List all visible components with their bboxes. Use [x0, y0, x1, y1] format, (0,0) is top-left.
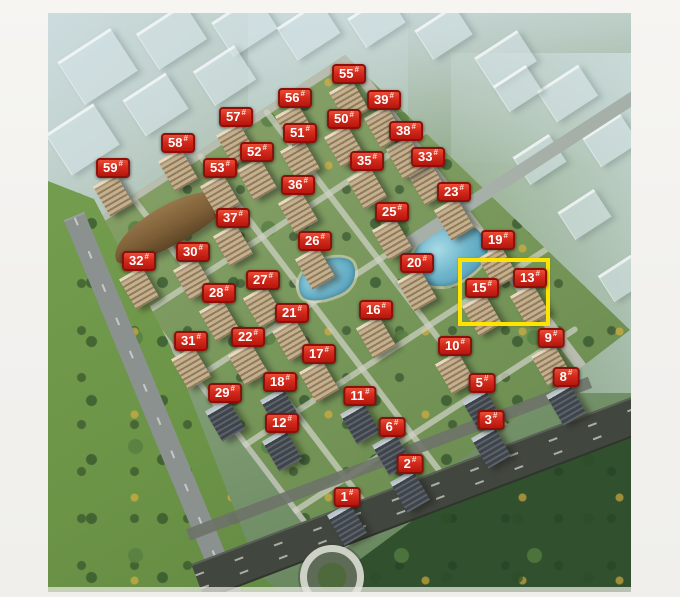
number-suffix: #: [184, 134, 188, 143]
building-number: 32: [129, 253, 143, 268]
number-suffix: #: [226, 159, 230, 168]
building-number: 37: [223, 210, 237, 225]
building-label-50: 50#: [327, 109, 361, 129]
building-label-12: 12#: [265, 413, 299, 433]
number-suffix: #: [325, 345, 329, 354]
number-suffix: #: [254, 328, 258, 337]
number-suffix: #: [199, 243, 203, 252]
building-number: 9: [545, 330, 552, 345]
ghost-building: [57, 28, 138, 105]
number-suffix: #: [242, 108, 246, 117]
number-suffix: #: [239, 209, 243, 218]
building-label-55: 55#: [332, 64, 366, 84]
number-suffix: #: [288, 414, 292, 423]
building-number: 35: [357, 153, 371, 168]
number-suffix: #: [484, 374, 488, 383]
number-suffix: #: [306, 124, 310, 133]
building-label-59: 59#: [96, 158, 130, 178]
building-number: 29: [215, 385, 229, 400]
building-label-3: 3#: [478, 410, 505, 430]
number-suffix: #: [504, 231, 508, 240]
number-suffix: #: [321, 232, 325, 241]
building-number: 51: [290, 125, 304, 140]
ghost-building: [557, 189, 611, 240]
building-number: 30: [183, 244, 197, 259]
building-label-27: 27#: [246, 270, 280, 290]
number-suffix: #: [298, 304, 302, 313]
ghost-building: [414, 13, 472, 60]
building-number: 10: [445, 338, 459, 353]
ghost-building: [598, 255, 631, 302]
building-label-25: 25#: [375, 202, 409, 222]
building-number: 58: [168, 135, 182, 150]
building-label-8: 8#: [553, 367, 580, 387]
building-label-20: 20#: [400, 253, 434, 273]
building-number: 59: [103, 160, 117, 175]
article-image-page: 1#2#3#5#6#8#9#10#11#12#13#15#16#17#18#19…: [0, 0, 680, 597]
photo-bottom-edge: [48, 587, 631, 592]
number-suffix: #: [536, 269, 540, 278]
building-label-23: 23#: [437, 182, 471, 202]
building-number: 53: [210, 160, 224, 175]
building-number: 50: [334, 111, 348, 126]
number-suffix: #: [412, 122, 416, 131]
number-suffix: #: [461, 337, 465, 346]
number-suffix: #: [197, 332, 201, 341]
building-number: 38: [396, 123, 410, 138]
building-label-51: 51#: [283, 123, 317, 143]
number-suffix: #: [263, 143, 267, 152]
building-label-21: 21#: [275, 303, 309, 323]
building-number: 5: [476, 375, 483, 390]
building-number: 1: [341, 489, 348, 504]
building-number: 11: [350, 388, 364, 403]
building-label-36: 36#: [281, 175, 315, 195]
building-number: 15: [472, 280, 486, 295]
building-label-16: 16#: [359, 300, 393, 320]
building-label-39: 39#: [367, 90, 401, 110]
number-suffix: #: [350, 110, 354, 119]
building-number: 3: [485, 412, 492, 427]
number-suffix: #: [412, 455, 416, 464]
ghost-building: [136, 13, 207, 70]
building-label-2: 2#: [397, 454, 424, 474]
building-label-58: 58#: [161, 133, 195, 153]
building-label-10: 10#: [438, 336, 472, 356]
building-number: 57: [226, 109, 240, 124]
building-label-15: 15#: [465, 278, 499, 298]
building-number: 23: [444, 184, 458, 199]
building-label-13: 13#: [513, 268, 547, 288]
building-number: 33: [418, 149, 432, 164]
number-suffix: #: [398, 203, 402, 212]
building-label-57: 57#: [219, 107, 253, 127]
building-label-22: 22#: [231, 327, 265, 347]
building-label-31: 31#: [174, 331, 208, 351]
number-suffix: #: [493, 411, 497, 420]
building-number: 36: [288, 177, 302, 192]
number-suffix: #: [460, 183, 464, 192]
building-number: 55: [339, 66, 353, 81]
building-label-35: 35#: [350, 151, 384, 171]
ghost-building: [537, 65, 598, 123]
ghost-building: [347, 13, 405, 48]
building-number: 2: [404, 456, 411, 471]
number-suffix: #: [355, 65, 359, 74]
building-label-53: 53#: [203, 158, 237, 178]
building-number: 21: [282, 305, 296, 320]
building-label-5: 5#: [469, 373, 496, 393]
number-suffix: #: [304, 176, 308, 185]
number-suffix: #: [119, 159, 123, 168]
number-suffix: #: [382, 301, 386, 310]
building-number: 6: [386, 419, 393, 434]
building-label-1: 1#: [334, 487, 361, 507]
number-suffix: #: [568, 368, 572, 377]
building-label-18: 18#: [263, 372, 297, 392]
building-label-17: 17#: [302, 344, 336, 364]
building-number: 31: [181, 333, 195, 348]
ghost-building: [276, 13, 340, 61]
building-number: 27: [253, 272, 267, 287]
building-label-32: 32#: [122, 251, 156, 271]
building-label-28: 28#: [202, 283, 236, 303]
number-suffix: #: [286, 373, 290, 382]
building-number: 28: [209, 285, 223, 300]
number-suffix: #: [269, 271, 273, 280]
building-label-56: 56#: [278, 88, 312, 108]
number-suffix: #: [373, 152, 377, 161]
ghost-building: [211, 13, 278, 57]
building-number: 52: [247, 144, 261, 159]
building-label-30: 30#: [176, 242, 210, 262]
building-label-29: 29#: [208, 383, 242, 403]
building-number: 56: [285, 90, 299, 105]
building-label-9: 9#: [538, 328, 565, 348]
building-number: 8: [560, 369, 567, 384]
building-number: 18: [270, 374, 284, 389]
number-suffix: #: [349, 488, 353, 497]
building-label-38: 38#: [389, 121, 423, 141]
building-label-6: 6#: [379, 417, 406, 437]
building-number: 12: [272, 415, 286, 430]
building-label-11: 11#: [343, 386, 376, 406]
number-suffix: #: [145, 252, 149, 261]
building-number: 19: [488, 232, 502, 247]
building-number: 16: [366, 302, 380, 317]
masterplan-aerial-rendering: 1#2#3#5#6#8#9#10#11#12#13#15#16#17#18#19…: [48, 13, 631, 592]
building-label-26: 26#: [298, 231, 332, 251]
number-suffix: #: [394, 418, 398, 427]
ghost-building: [193, 45, 256, 106]
number-suffix: #: [553, 329, 557, 338]
building-number: 26: [305, 233, 319, 248]
ghost-building: [122, 73, 188, 137]
number-suffix: #: [365, 387, 369, 396]
building-number: 13: [520, 270, 534, 285]
number-suffix: #: [488, 279, 492, 288]
number-suffix: #: [390, 91, 394, 100]
number-suffix: #: [301, 89, 305, 98]
building-number: 39: [374, 92, 388, 107]
building-number: 22: [238, 329, 252, 344]
building-number: 20: [407, 255, 421, 270]
building-label-52: 52#: [240, 142, 274, 162]
number-suffix: #: [231, 384, 235, 393]
building-number: 25: [382, 204, 396, 219]
building-label-19: 19#: [481, 230, 515, 250]
building-label-37: 37#: [216, 208, 250, 228]
number-suffix: #: [225, 284, 229, 293]
building-number: 17: [309, 346, 323, 361]
building-label-33: 33#: [411, 147, 445, 167]
number-suffix: #: [434, 148, 438, 157]
number-suffix: #: [423, 254, 427, 263]
